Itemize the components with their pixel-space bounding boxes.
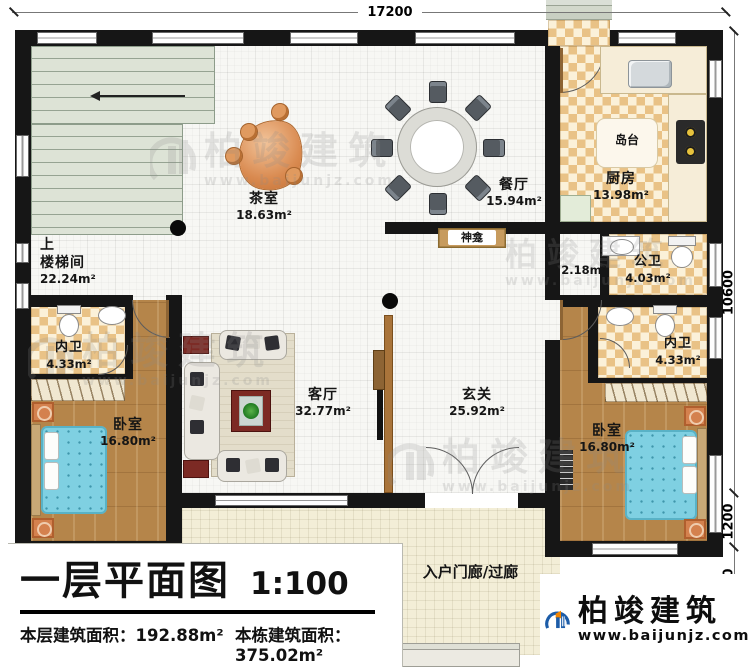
brand-url: www.baijunjz.com [578, 628, 750, 644]
kitchen-door-leaf [560, 48, 563, 93]
window [37, 32, 97, 44]
tea-stool [286, 168, 302, 184]
stair-direction-arrow [100, 95, 185, 97]
wardrobe-right [605, 383, 707, 402]
room-name: 内卫 [24, 340, 114, 357]
staircase-lower [31, 124, 183, 235]
stat-building-area: 本栋建筑面积：375.02m² [235, 622, 402, 665]
room-name: 客厅 [273, 386, 373, 404]
entry-steps [393, 643, 520, 667]
tea-stool [272, 104, 288, 120]
wall [385, 222, 723, 234]
sink-basin [98, 306, 126, 325]
title-row: 一层平面图 1:100 [20, 548, 375, 614]
sofa-cushion [245, 458, 261, 474]
column-dot [170, 220, 186, 236]
room-area: 16.80m² [562, 440, 652, 456]
window [592, 543, 678, 555]
stair-arrow-head [90, 91, 100, 101]
tv-screen [377, 390, 383, 440]
wardrobe-left [31, 379, 125, 401]
wall [588, 378, 707, 383]
foyer-label: 玄关 25.92m² [427, 386, 527, 420]
window [215, 495, 348, 506]
bed-headboard [697, 428, 707, 522]
tea-room-label: 茶室 18.63m² [214, 190, 314, 224]
window [618, 32, 676, 44]
title-block: 一层平面图 1:100 本层建筑面积：192.88m² 本栋建筑面积：375.0… [8, 543, 403, 667]
window [16, 283, 29, 309]
sofa-cushion [265, 458, 279, 472]
toilet-bowl [655, 314, 675, 337]
stair-label: 上 楼梯间 22.24m² [40, 236, 140, 288]
side-table [183, 336, 209, 354]
shrine-label: 神龛 [448, 230, 496, 245]
plan-stats: 本层建筑面积：192.88m² 本栋建筑面积：375.02m² 占地面积：229… [20, 622, 402, 667]
kitchen-sink [628, 60, 672, 88]
tea-stool [226, 148, 242, 164]
room-name: 餐厅 [464, 176, 564, 194]
stove-burner [685, 127, 696, 138]
window [415, 32, 515, 44]
brand-logo: 柏竣建筑 www.baijunjz.com [540, 574, 750, 666]
room-name: 厨房 [571, 170, 671, 188]
sofa-cushion [246, 335, 260, 349]
dining-chair [483, 139, 505, 157]
room-area: 32.77m² [273, 404, 373, 420]
pillow [682, 466, 697, 494]
staircase [31, 46, 215, 124]
kitchen-label: 厨房 13.98m² [571, 170, 671, 204]
room-name: 玄关 [427, 386, 527, 404]
pillow [44, 462, 59, 490]
room-name: 内卫 [633, 336, 723, 353]
back-landing [548, 20, 610, 46]
tea-stool [241, 124, 257, 140]
bedroom-right-label: 卧室 16.80m² [562, 422, 652, 456]
toilet-bowl [59, 314, 79, 337]
dimension-right-value: 1200 [722, 500, 737, 544]
stair-direction: 上 [40, 236, 140, 254]
wall [31, 374, 125, 379]
shoe-cabinet [560, 450, 573, 490]
toilet-tank [57, 305, 81, 314]
plant [243, 403, 259, 419]
dimension-line-right [734, 30, 735, 655]
sofa-cushion [226, 458, 240, 472]
column-dot [382, 293, 398, 309]
room-area: 25.92m² [427, 404, 527, 420]
room-area: 16.80m² [83, 434, 173, 450]
sofa-cushion [264, 335, 280, 351]
back-steps [546, 0, 612, 20]
sofa-cushion [190, 372, 204, 386]
toilet-tank [668, 236, 696, 246]
tv-console [373, 350, 385, 390]
bath-lobby-label: 2.18m² [548, 263, 620, 278]
dimension-top-value: 17200 [358, 5, 422, 20]
nightstand [684, 519, 706, 539]
nightstand [32, 518, 54, 538]
room-area: 13.98m² [571, 188, 671, 204]
stove-burner [685, 146, 696, 157]
stair-name: 楼梯间 [40, 254, 140, 272]
stat-floor-area: 本层建筑面积：192.88m² [20, 622, 235, 665]
ensuite-left-label: 内卫 4.33m² [24, 340, 114, 372]
dining-chair [371, 139, 393, 157]
room-area: 4.33m² [24, 357, 114, 372]
room-name: 茶室 [214, 190, 314, 208]
plan-title: 一层平面图 [20, 548, 230, 606]
nightstand [684, 406, 706, 426]
pillow [44, 432, 59, 460]
sofa-cushion [225, 335, 241, 351]
window [16, 135, 29, 177]
window [16, 243, 29, 263]
room-name: 卧室 [83, 416, 173, 434]
nightstand [32, 402, 54, 422]
side-table [183, 460, 209, 478]
sink-basin [606, 307, 634, 326]
wall [545, 340, 560, 557]
island-label: 岛台 [592, 133, 662, 149]
room-area: 15.94m² [464, 194, 564, 210]
window [709, 60, 722, 98]
brand-logo-icon [544, 591, 571, 649]
tv-divider-wall [384, 315, 393, 493]
ensuite-right-label: 内卫 4.33m² [633, 336, 723, 368]
window [709, 455, 722, 533]
room-name: 卧室 [562, 422, 652, 440]
sink-basin [610, 239, 634, 255]
sofa-cushion [190, 420, 204, 434]
dining-chair [429, 81, 447, 103]
pillow [682, 436, 697, 464]
dining-table-top [410, 120, 464, 174]
window [290, 32, 358, 44]
room-area: 4.33m² [633, 353, 723, 368]
bedroom-right-door-leaf [560, 300, 563, 340]
stair-area: 22.24m² [40, 272, 140, 288]
floor-plan-page: 神龛 柏竣建筑 www.baijunjz. [0, 0, 750, 667]
sofa-cushion [189, 395, 206, 412]
dining-chair [429, 193, 447, 215]
window [709, 243, 722, 287]
toilet-tank [653, 305, 677, 314]
room-area: 18.63m² [214, 208, 314, 224]
window [152, 32, 244, 44]
living-label: 客厅 32.77m² [273, 386, 373, 420]
dimension-right-value: 10600 [722, 263, 737, 323]
bed-headboard [31, 424, 41, 516]
bedroom-left-door-leaf [166, 300, 169, 338]
brand-name: 柏竣建筑 [578, 596, 750, 628]
dining-label: 餐厅 15.94m² [464, 176, 564, 210]
porch-label: 入户门廊/过廊 [388, 563, 553, 583]
plan-scale: 1:100 [250, 566, 349, 602]
bedroom-left-label: 卧室 16.80m² [83, 416, 173, 450]
